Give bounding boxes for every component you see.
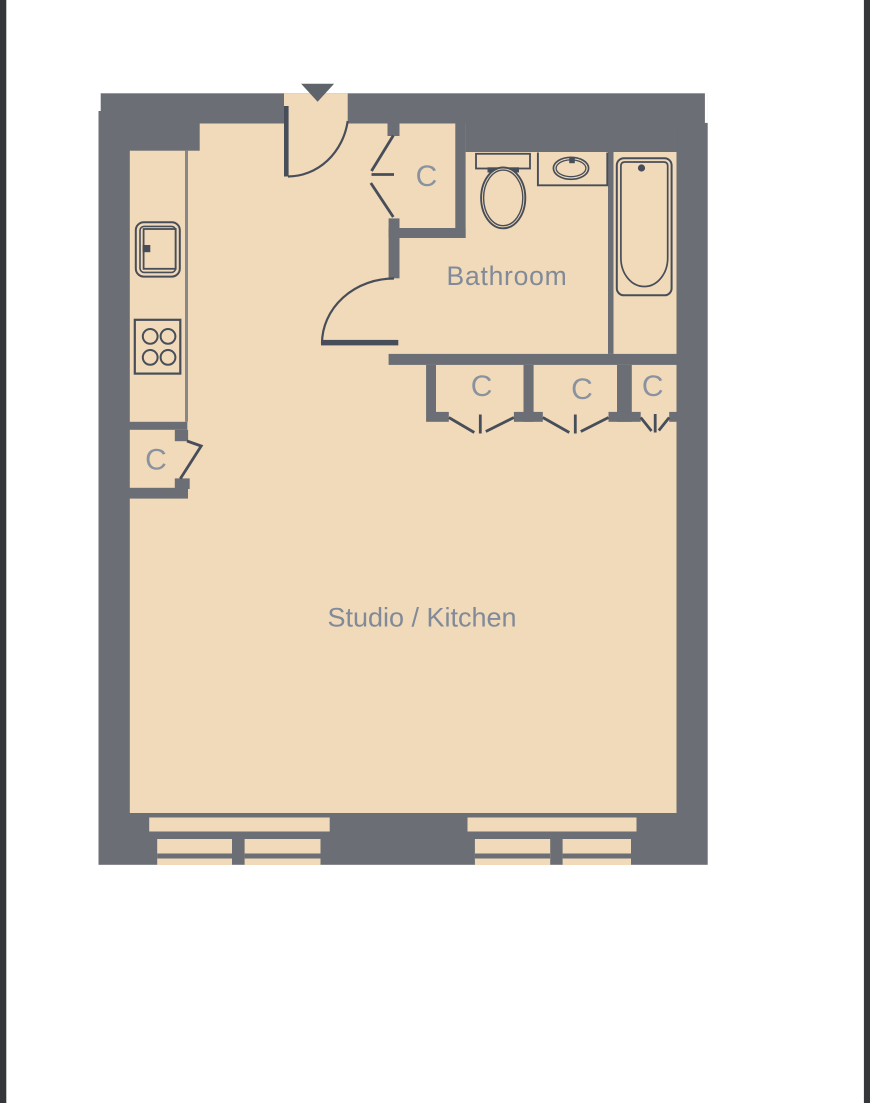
- svg-text:Bathroom: Bathroom: [447, 261, 568, 291]
- svg-text:Studio / Kitchen: Studio / Kitchen: [327, 603, 516, 633]
- svg-text:C: C: [642, 370, 664, 403]
- svg-text:C: C: [145, 444, 167, 477]
- svg-text:C: C: [416, 160, 438, 193]
- svg-text:C: C: [571, 373, 593, 406]
- svg-text:C: C: [471, 370, 493, 403]
